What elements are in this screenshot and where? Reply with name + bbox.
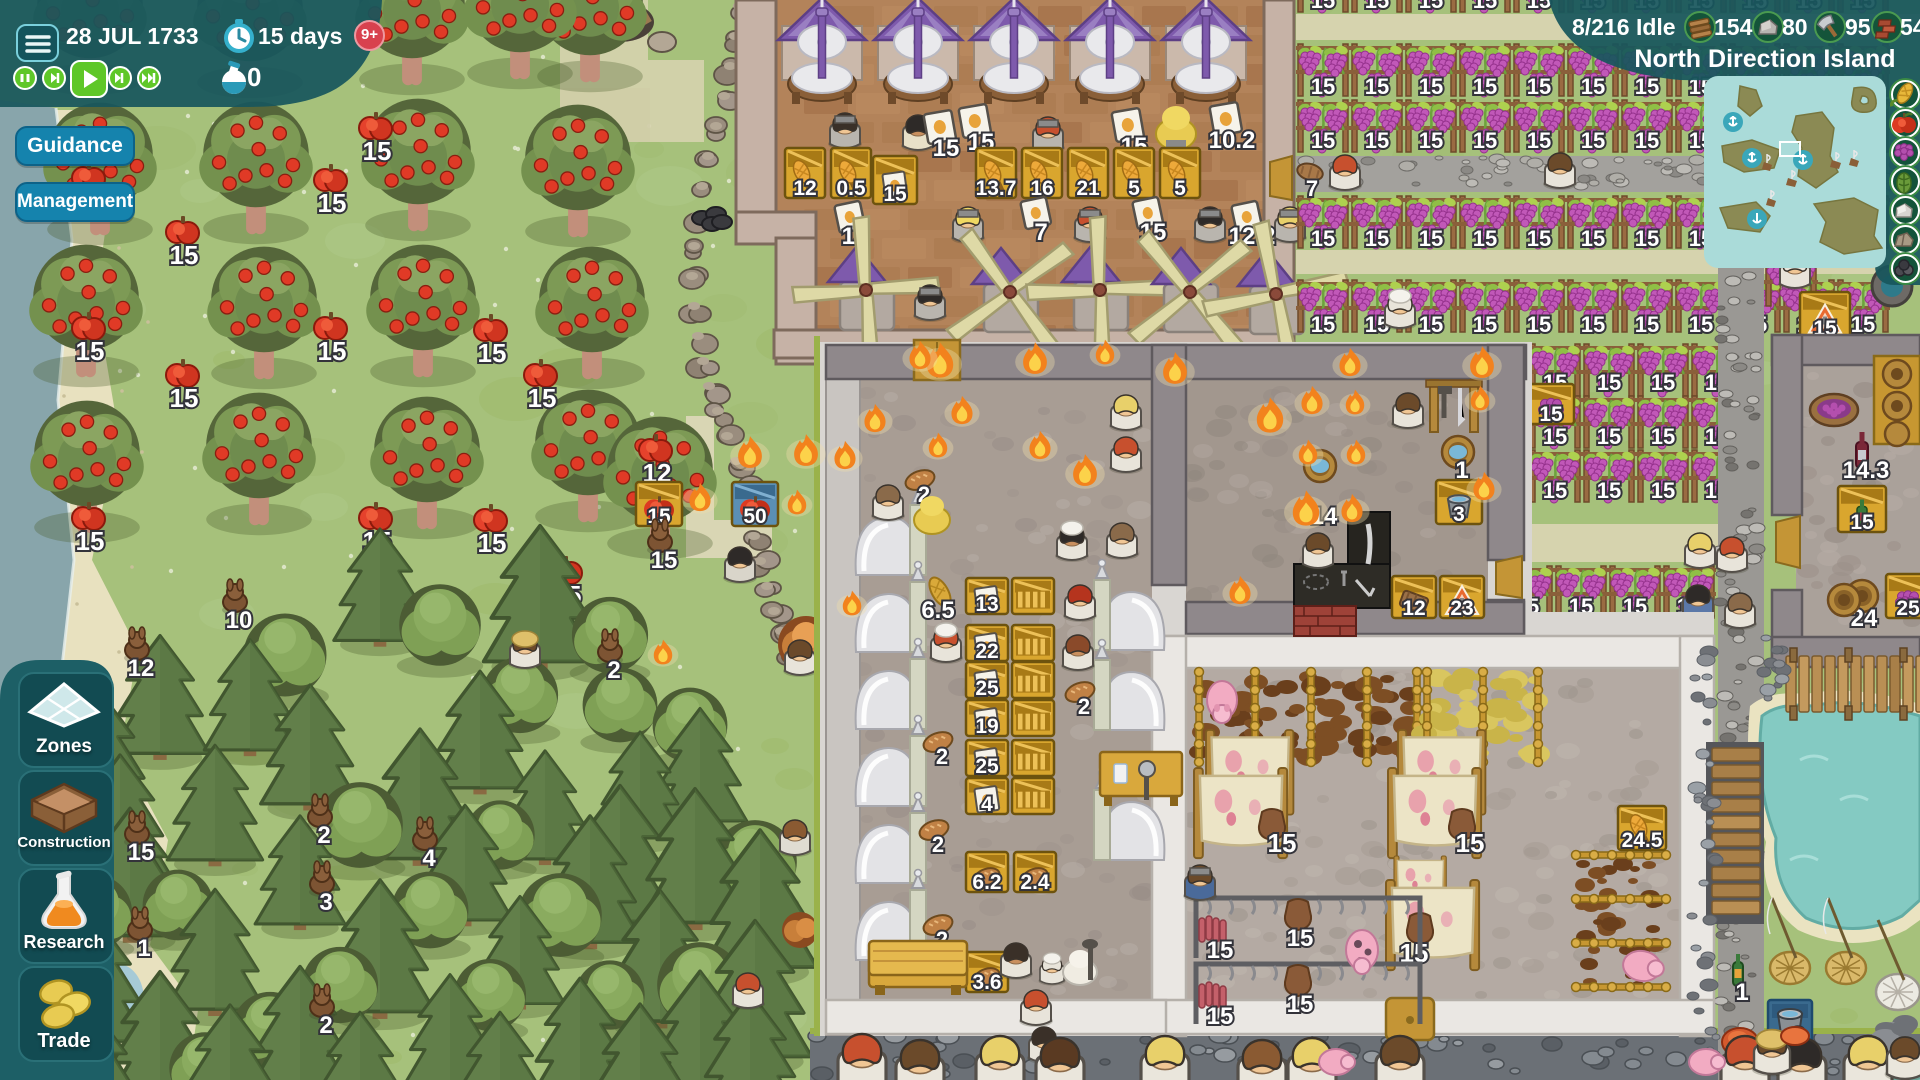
svg-text:15: 15 xyxy=(170,240,199,270)
svg-text:5: 5 xyxy=(1174,177,1186,200)
svg-text:23: 23 xyxy=(1450,597,1473,620)
svg-text:25: 25 xyxy=(975,755,999,778)
svg-text:15: 15 xyxy=(1365,0,1389,13)
svg-text:15: 15 xyxy=(1851,312,1875,337)
svg-text:15: 15 xyxy=(1581,312,1605,337)
svg-text:15: 15 xyxy=(1268,828,1297,858)
svg-text:2: 2 xyxy=(317,822,330,849)
svg-text:15: 15 xyxy=(1597,478,1621,503)
svg-text:15: 15 xyxy=(1543,424,1567,449)
svg-text:50: 50 xyxy=(743,505,766,528)
svg-text:15: 15 xyxy=(1419,0,1443,13)
svg-text:2: 2 xyxy=(932,832,944,857)
svg-text:15: 15 xyxy=(1419,226,1443,251)
svg-text:5: 5 xyxy=(1128,177,1140,200)
svg-text:15: 15 xyxy=(1473,312,1497,337)
svg-text:15: 15 xyxy=(1473,128,1497,153)
svg-text:12: 12 xyxy=(1402,597,1425,620)
svg-text:15: 15 xyxy=(1651,370,1675,395)
svg-text:15: 15 xyxy=(76,526,105,556)
svg-text:15: 15 xyxy=(1651,424,1675,449)
svg-text:15: 15 xyxy=(1527,312,1551,337)
svg-text:15: 15 xyxy=(1311,0,1335,13)
svg-text:15: 15 xyxy=(1597,370,1621,395)
svg-text:15: 15 xyxy=(1850,511,1874,534)
svg-text:2: 2 xyxy=(607,657,620,684)
svg-text:3.6: 3.6 xyxy=(972,971,1001,994)
svg-text:15: 15 xyxy=(1419,74,1443,99)
svg-text:1: 1 xyxy=(1735,979,1748,1006)
svg-text:15: 15 xyxy=(1473,74,1497,99)
svg-text:15: 15 xyxy=(651,547,678,574)
svg-text:12: 12 xyxy=(793,177,816,200)
svg-text:15: 15 xyxy=(1473,0,1497,13)
svg-text:3: 3 xyxy=(319,889,332,916)
svg-text:15: 15 xyxy=(318,336,347,366)
svg-text:15: 15 xyxy=(1311,312,1335,337)
svg-text:12: 12 xyxy=(128,655,155,682)
svg-text:15: 15 xyxy=(478,338,507,368)
svg-text:15: 15 xyxy=(1539,403,1563,426)
svg-text:2: 2 xyxy=(1078,694,1090,719)
svg-text:15: 15 xyxy=(1456,828,1485,858)
svg-text:15: 15 xyxy=(1311,128,1335,153)
svg-text:15: 15 xyxy=(1287,991,1314,1018)
svg-text:15: 15 xyxy=(170,383,199,413)
svg-text:7: 7 xyxy=(1034,219,1047,246)
svg-text:15: 15 xyxy=(128,839,155,866)
svg-text:7: 7 xyxy=(1306,176,1318,201)
svg-text:13: 13 xyxy=(975,593,998,616)
svg-text:15: 15 xyxy=(1635,312,1659,337)
svg-text:15: 15 xyxy=(1365,74,1389,99)
svg-text:15: 15 xyxy=(1419,312,1443,337)
svg-text:15: 15 xyxy=(1207,937,1234,964)
svg-text:1: 1 xyxy=(137,935,150,962)
svg-text:19: 19 xyxy=(975,715,998,738)
svg-text:3: 3 xyxy=(1453,503,1465,526)
svg-text:15: 15 xyxy=(1311,226,1335,251)
svg-text:4: 4 xyxy=(422,845,436,872)
svg-text:2: 2 xyxy=(319,1012,332,1039)
svg-text:14.3: 14.3 xyxy=(1843,457,1890,484)
svg-text:2: 2 xyxy=(936,744,948,769)
svg-text:21: 21 xyxy=(1076,177,1100,200)
svg-text:15: 15 xyxy=(1287,925,1314,952)
svg-text:15: 15 xyxy=(478,528,507,558)
svg-text:25: 25 xyxy=(1896,597,1920,620)
svg-text:15: 15 xyxy=(1689,312,1713,337)
svg-text:15: 15 xyxy=(933,135,960,162)
svg-text:15: 15 xyxy=(528,383,557,413)
svg-text:24.5: 24.5 xyxy=(1622,829,1663,852)
svg-text:22: 22 xyxy=(975,640,998,663)
svg-text:6.2: 6.2 xyxy=(972,871,1001,894)
svg-text:15: 15 xyxy=(1473,226,1497,251)
svg-text:15: 15 xyxy=(1365,128,1389,153)
svg-text:15: 15 xyxy=(883,183,907,206)
svg-text:15: 15 xyxy=(1365,226,1389,251)
svg-text:6.5: 6.5 xyxy=(921,597,954,624)
svg-text:0.5: 0.5 xyxy=(836,177,866,200)
svg-text:15: 15 xyxy=(1207,1003,1234,1030)
svg-text:15: 15 xyxy=(76,336,105,366)
svg-text:10: 10 xyxy=(226,607,253,634)
svg-text:15: 15 xyxy=(1597,424,1621,449)
svg-text:15: 15 xyxy=(1311,74,1335,99)
svg-text:2.4: 2.4 xyxy=(1020,871,1050,894)
svg-text:4: 4 xyxy=(981,793,993,816)
svg-text:15: 15 xyxy=(1651,478,1675,503)
svg-text:10.2: 10.2 xyxy=(1209,127,1256,154)
svg-text:13.7: 13.7 xyxy=(976,177,1017,200)
svg-text:15: 15 xyxy=(1543,478,1567,503)
svg-text:25: 25 xyxy=(975,677,999,700)
svg-text:15: 15 xyxy=(1419,128,1443,153)
